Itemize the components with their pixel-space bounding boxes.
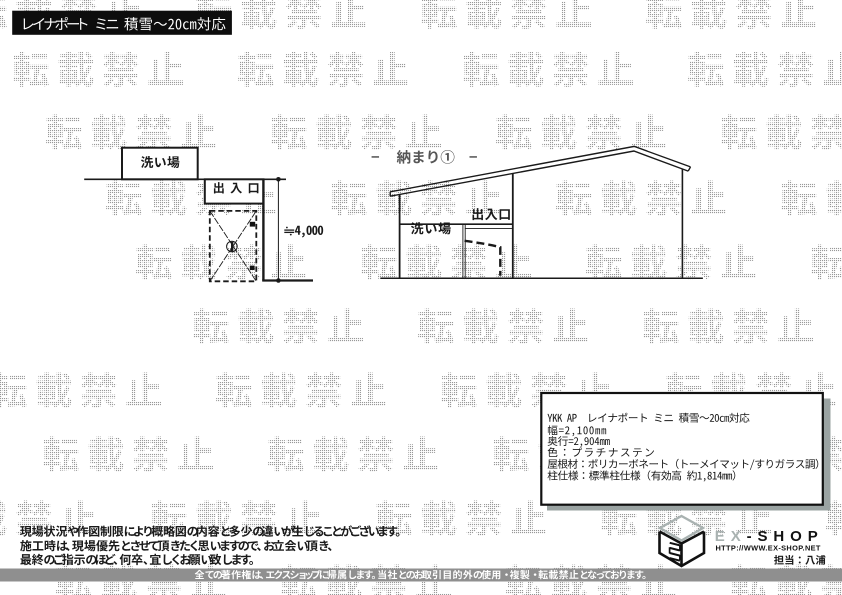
svg-text:HTTP://WWW.EX-SHOP.NET: HTTP://WWW.EX-SHOP.NET	[716, 544, 821, 553]
svg-text:EX-SHOP: EX-SHOP	[715, 528, 824, 545]
